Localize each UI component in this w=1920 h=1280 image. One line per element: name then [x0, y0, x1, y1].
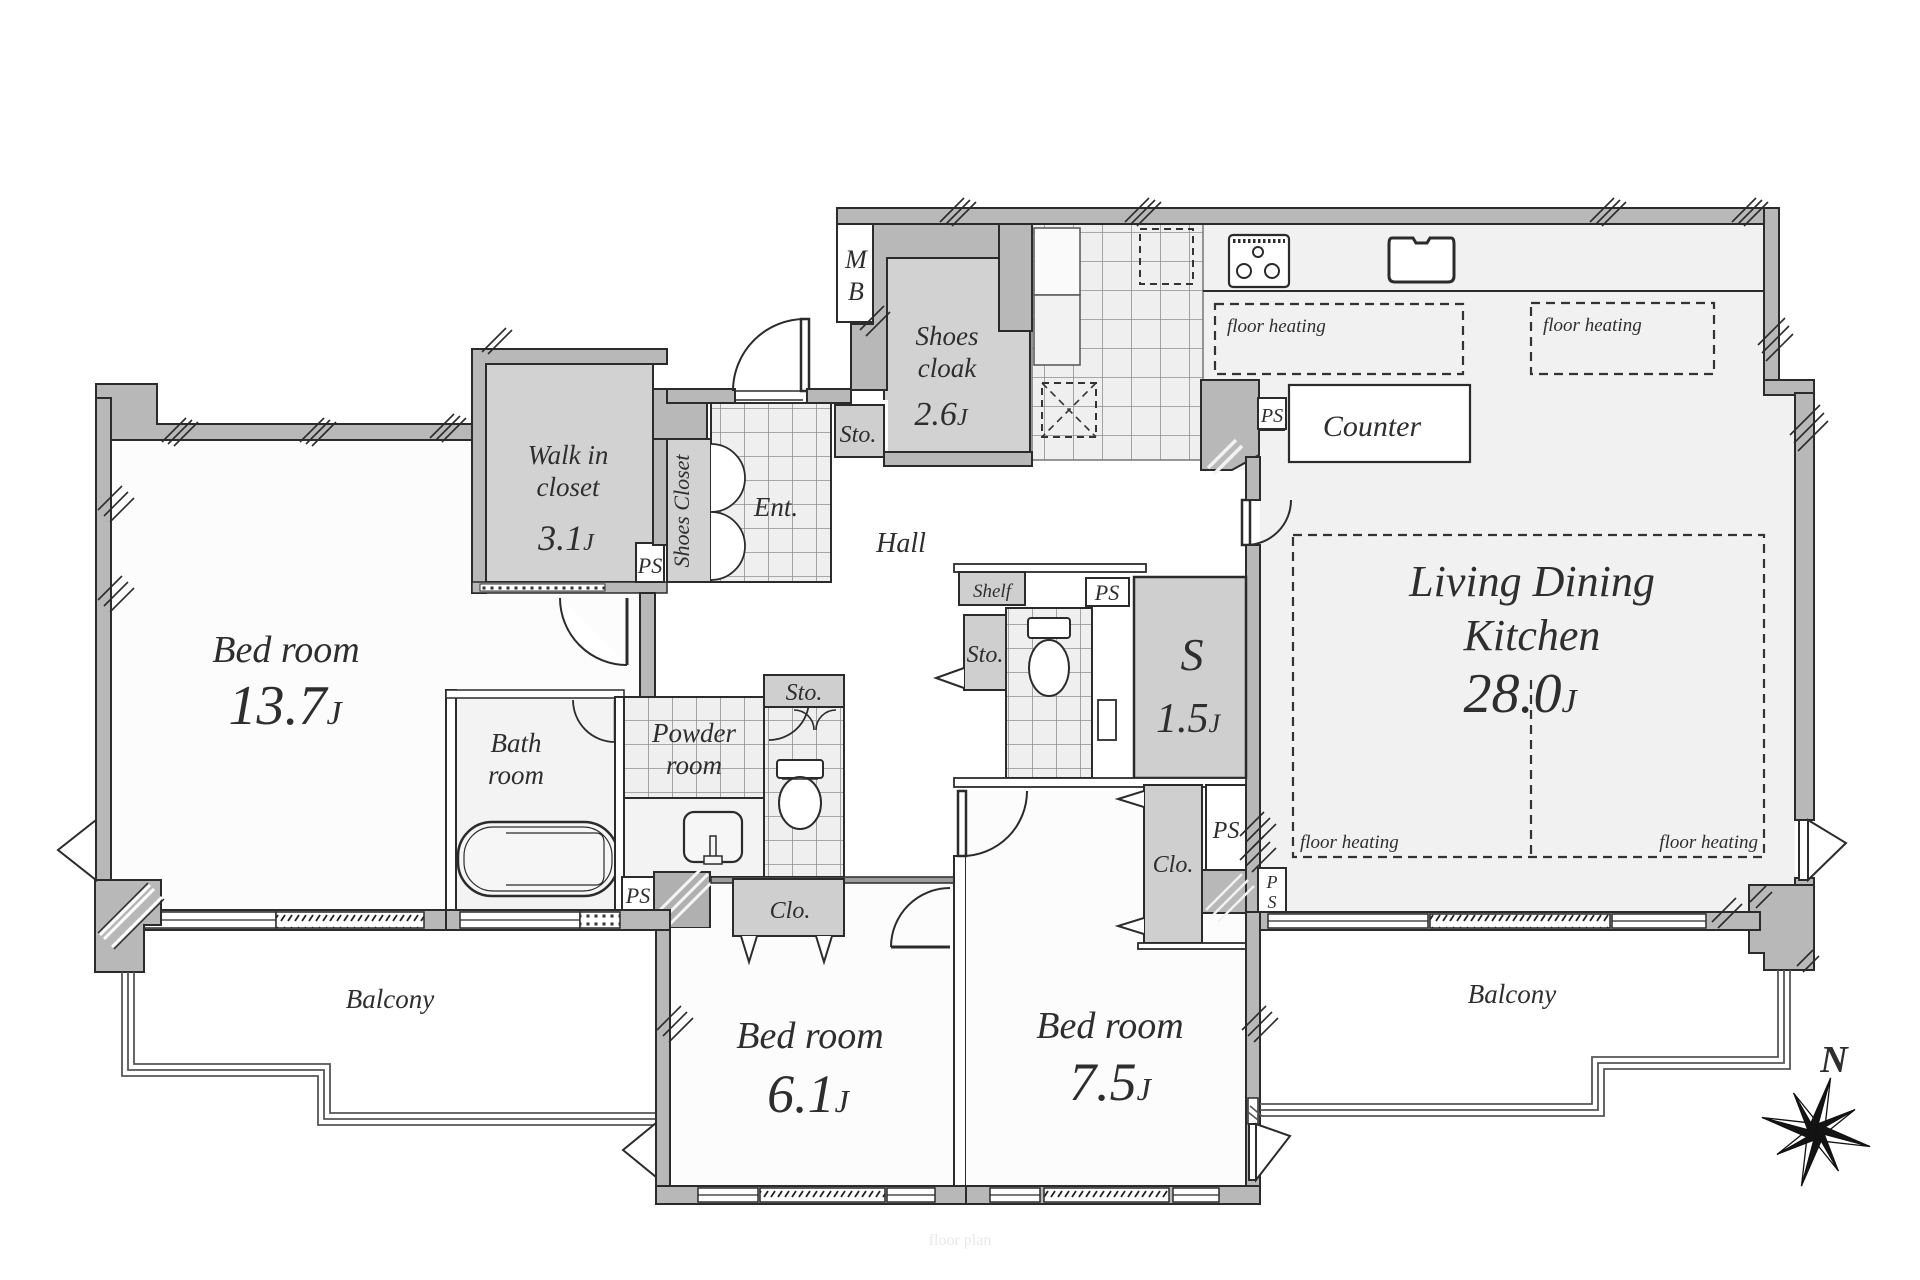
svg-text:PS: PS: [1260, 405, 1283, 427]
svg-text:room: room: [488, 760, 544, 790]
svg-text:Sto.: Sto.: [967, 642, 1004, 668]
svg-text:room: room: [666, 750, 722, 780]
svg-text:Clo.: Clo.: [770, 898, 811, 924]
svg-text:S: S: [1268, 892, 1277, 912]
svg-text:floor heating: floor heating: [1227, 316, 1326, 337]
svg-text:Shoes: Shoes: [916, 321, 979, 351]
svg-text:B: B: [848, 277, 864, 306]
svg-text:Bath: Bath: [491, 728, 542, 758]
svg-text:S: S: [1181, 629, 1204, 680]
svg-text:closet: closet: [537, 472, 601, 502]
svg-text:cloak: cloak: [918, 353, 977, 383]
svg-text:Bed room: Bed room: [1036, 1005, 1183, 1047]
svg-text:Clo.: Clo.: [1153, 852, 1194, 878]
svg-text:floor plan: floor plan: [929, 1232, 992, 1249]
svg-text:Shoes Closet: Shoes Closet: [669, 454, 694, 568]
svg-text:floor heating: floor heating: [1543, 315, 1642, 336]
svg-text:floor heating: floor heating: [1659, 832, 1758, 853]
svg-text:Counter: Counter: [1323, 410, 1422, 443]
svg-text:Balcony: Balcony: [346, 984, 434, 1014]
svg-text:28.0J: 28.0J: [1463, 663, 1578, 725]
svg-text:floor heating: floor heating: [1300, 832, 1399, 853]
svg-text:Sto.: Sto.: [786, 680, 823, 706]
svg-text:Kitchen: Kitchen: [1463, 611, 1601, 660]
svg-text:Living Dining: Living Dining: [1408, 557, 1655, 606]
svg-text:Bed room: Bed room: [736, 1015, 883, 1057]
svg-text:PS: PS: [637, 553, 662, 578]
svg-text:Balcony: Balcony: [1468, 979, 1556, 1009]
svg-text:Ent.: Ent.: [753, 492, 798, 522]
svg-text:N: N: [1819, 1039, 1849, 1081]
svg-text:Hall: Hall: [875, 528, 926, 559]
svg-text:Shelf: Shelf: [973, 581, 1014, 602]
svg-text:PS: PS: [625, 883, 650, 908]
svg-text:Sto.: Sto.: [840, 422, 877, 448]
svg-text:Bed room: Bed room: [212, 629, 359, 671]
svg-text:Walk in: Walk in: [528, 440, 609, 470]
svg-text:P: P: [1266, 872, 1278, 892]
svg-text:Powder: Powder: [651, 718, 736, 748]
svg-text:M: M: [844, 245, 868, 274]
svg-text:PS: PS: [1212, 818, 1240, 844]
svg-text:PS: PS: [1094, 580, 1119, 605]
svg-text:13.7J: 13.7J: [228, 675, 343, 737]
